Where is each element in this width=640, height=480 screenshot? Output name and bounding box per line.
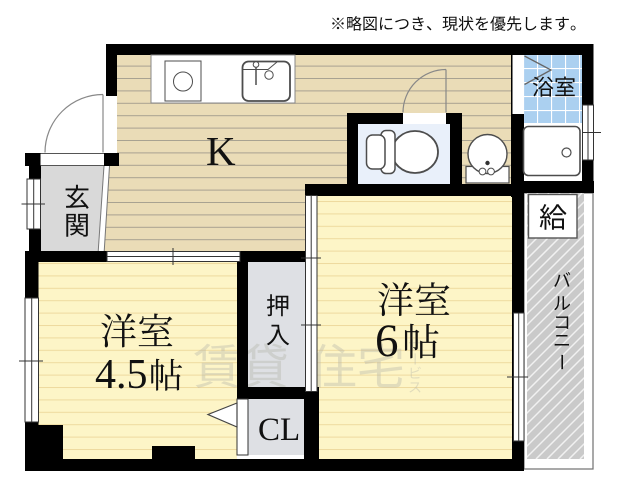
svg-text:CL: CL — [258, 412, 300, 448]
svg-text:K: K — [206, 128, 236, 174]
svg-text:4.5: 4.5 — [95, 352, 148, 398]
svg-text:6: 6 — [375, 315, 399, 367]
